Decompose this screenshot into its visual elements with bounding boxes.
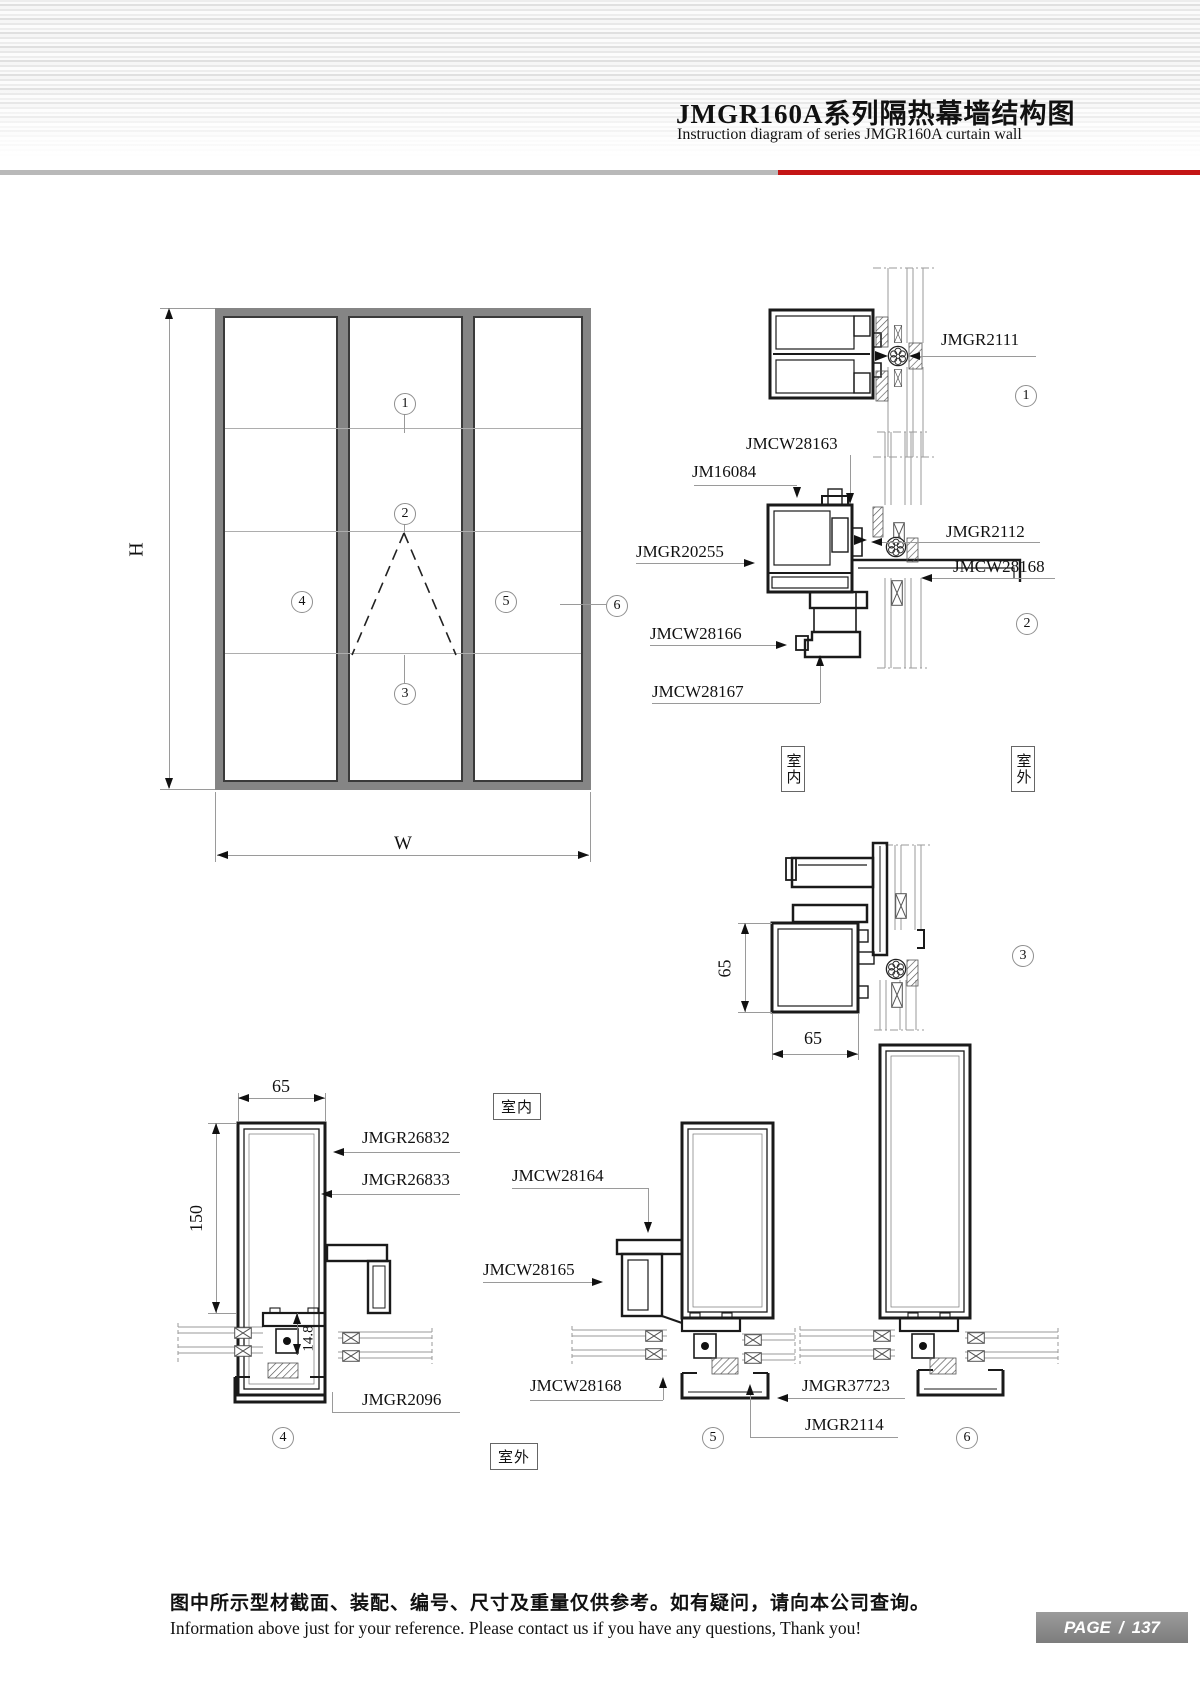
page-label: PAGE xyxy=(1064,1618,1111,1638)
leader-line xyxy=(332,1392,333,1412)
dim-line xyxy=(238,1098,325,1099)
marker-label: 3 xyxy=(402,686,409,702)
dim-arrow xyxy=(217,851,228,859)
leader-line xyxy=(404,413,405,433)
part-label: JMGR2112 xyxy=(946,522,1025,542)
marker-label: 6 xyxy=(964,1430,971,1446)
detail-1-number: 1 xyxy=(1015,385,1037,407)
leader-arrow xyxy=(321,1190,332,1198)
marker-label: 2 xyxy=(1024,616,1031,632)
footer-note-en: Information above just for your referenc… xyxy=(170,1618,861,1639)
marker-5: 5 xyxy=(495,591,517,613)
detail-6-number: 6 xyxy=(956,1427,978,1449)
marker-1: 1 xyxy=(394,393,416,415)
dim-arrow xyxy=(741,1001,749,1012)
page-subtitle: Instruction diagram of series JMGR160A c… xyxy=(677,126,1022,144)
marker-label: 4 xyxy=(299,594,306,610)
marker-label: 5 xyxy=(710,1430,717,1446)
leader-arrow xyxy=(744,559,755,567)
elevation-panel-right xyxy=(473,316,583,782)
marker-label: 2 xyxy=(402,506,409,522)
footer-note-cn: 图中所示型材截面、装配、编号、尺寸及重量仅供参考。如有疑问，请向本公司查询。 xyxy=(170,1588,930,1615)
dim-line-w xyxy=(217,855,589,856)
leader-arrow xyxy=(816,655,824,666)
dim-arrow xyxy=(741,923,749,934)
leader-line xyxy=(663,1387,664,1400)
part-label: JMGR26833 xyxy=(362,1170,450,1190)
dim-arrow xyxy=(165,308,173,319)
dim-extension xyxy=(208,1313,236,1314)
dim-line xyxy=(745,923,746,1012)
leader-arrow xyxy=(871,538,882,546)
leader-line xyxy=(932,578,1055,579)
detail-3-number: 3 xyxy=(1012,945,1034,967)
dim-label: 65 xyxy=(272,1076,290,1097)
dim-arrow xyxy=(293,1313,301,1324)
part-label: JMCW28164 xyxy=(512,1166,604,1186)
detail-5-number: 5 xyxy=(702,1427,724,1449)
leader-arrow xyxy=(921,574,932,582)
leader-line xyxy=(750,1437,898,1438)
leader-arrow xyxy=(909,352,920,360)
part-label: JMGR2096 xyxy=(362,1390,441,1410)
detail-4-drawing xyxy=(170,1115,470,1410)
leader-arrow xyxy=(592,1278,603,1286)
part-label: JMGR26832 xyxy=(362,1128,450,1148)
leader-line xyxy=(650,645,776,646)
part-label: JMCW28167 xyxy=(652,682,744,702)
leader-line xyxy=(332,1194,460,1195)
part-label: JMGR2111 xyxy=(941,330,1019,350)
dim-line xyxy=(216,1123,217,1313)
leader-arrow xyxy=(846,493,854,504)
dim-arrow xyxy=(165,778,173,789)
dim-arrow xyxy=(238,1094,249,1102)
divider-red xyxy=(778,170,1200,175)
leader-arrow xyxy=(333,1148,344,1156)
leader-line xyxy=(850,455,851,495)
leader-line xyxy=(920,356,1036,357)
page-number-badge: PAGE / 137 xyxy=(1036,1612,1188,1643)
leader-line xyxy=(694,485,797,486)
leader-line xyxy=(750,1394,751,1437)
part-label: JMCW28168 xyxy=(530,1376,622,1396)
leader-line xyxy=(344,1152,460,1153)
dim-extension xyxy=(325,1093,326,1121)
leader-line xyxy=(332,1412,460,1413)
dim-arrow xyxy=(578,851,589,859)
leader-line xyxy=(512,1188,648,1189)
leader-line xyxy=(404,655,405,683)
leader-arrow xyxy=(659,1377,667,1388)
dim-label: 14.8 xyxy=(301,1325,318,1351)
marker-label: 3 xyxy=(1020,948,1027,964)
dim-label: 65 xyxy=(715,960,736,978)
leader-line xyxy=(648,1188,649,1226)
dim-line-h xyxy=(169,310,170,788)
marker-label: 1 xyxy=(1023,388,1030,404)
part-label: JMCW28168 xyxy=(953,557,1045,577)
leader-line xyxy=(882,542,1040,543)
part-label: JMCW28166 xyxy=(650,624,742,644)
page-number: 137 xyxy=(1132,1618,1160,1638)
marker-3: 3 xyxy=(394,683,416,705)
leader-line xyxy=(636,563,744,564)
marker-label: 4 xyxy=(280,1430,287,1446)
dim-extension xyxy=(738,1012,772,1013)
part-label: JMGR20255 xyxy=(636,542,724,562)
dim-extension xyxy=(215,792,216,862)
dim-arrow xyxy=(314,1094,325,1102)
leader-arrow xyxy=(746,1384,754,1395)
dim-arrow xyxy=(212,1123,220,1134)
elevation-panel-left xyxy=(223,316,338,782)
dim-label-w: W xyxy=(394,833,412,855)
part-label: JM16084 xyxy=(692,462,756,482)
leader-line xyxy=(530,1400,663,1401)
detail-2-number: 2 xyxy=(1016,613,1038,635)
leader-line xyxy=(652,703,820,704)
detail-6-drawing xyxy=(760,1035,1090,1410)
part-label: JMGR2114 xyxy=(805,1415,884,1435)
dim-extension xyxy=(160,789,215,790)
part-label: JMCW28165 xyxy=(483,1260,575,1280)
divider-gray xyxy=(0,170,778,175)
marker-4: 4 xyxy=(291,591,313,613)
leader-arrow xyxy=(793,487,801,498)
outdoor-label: 室外 xyxy=(490,1443,538,1470)
leader-arrow xyxy=(776,641,787,649)
leader-arrow xyxy=(644,1222,652,1233)
leader-line xyxy=(483,1282,593,1283)
dim-extension xyxy=(590,792,591,862)
dim-label-h: H xyxy=(126,542,149,556)
opening-symbol xyxy=(338,520,470,660)
outdoor-label: 室外 xyxy=(1011,746,1035,792)
dim-label: 150 xyxy=(186,1205,207,1232)
detail-4-number: 4 xyxy=(272,1427,294,1449)
dim-arrow xyxy=(212,1302,220,1313)
marker-2: 2 xyxy=(394,503,416,525)
detail-3-drawing xyxy=(640,790,1040,1060)
part-label: JMCW28163 xyxy=(746,434,838,454)
page-separator: / xyxy=(1119,1618,1124,1638)
indoor-label: 室内 xyxy=(781,746,805,792)
catalog-page: JMGR160A系列隔热幕墙结构图 Instruction diagram of… xyxy=(0,0,1200,1697)
leader-line xyxy=(820,665,821,703)
marker-label: 5 xyxy=(503,594,510,610)
marker-label: 1 xyxy=(402,396,409,412)
elevation-transom-line xyxy=(225,428,581,429)
